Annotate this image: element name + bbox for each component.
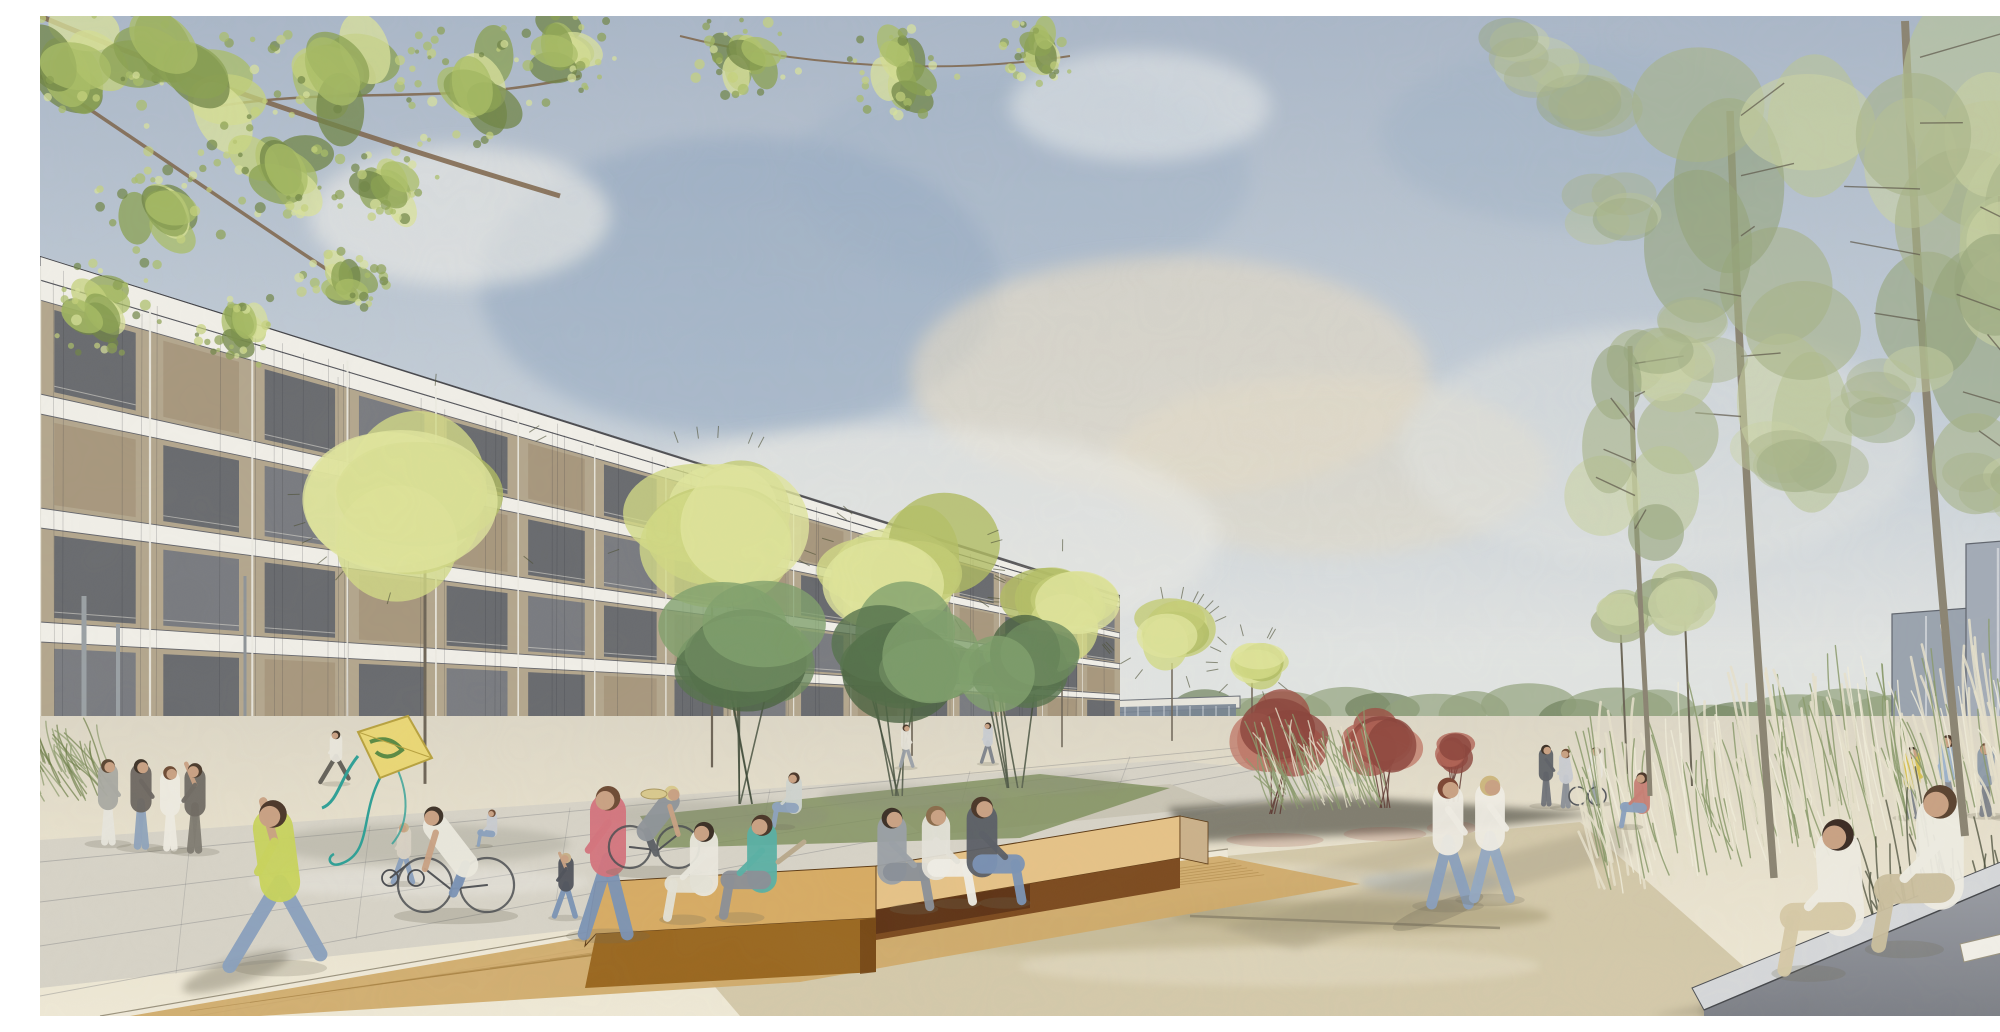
architectural-rendering xyxy=(40,16,2000,1016)
paper-grain-texture xyxy=(40,16,2000,1016)
rendering-canvas xyxy=(40,16,2000,1016)
